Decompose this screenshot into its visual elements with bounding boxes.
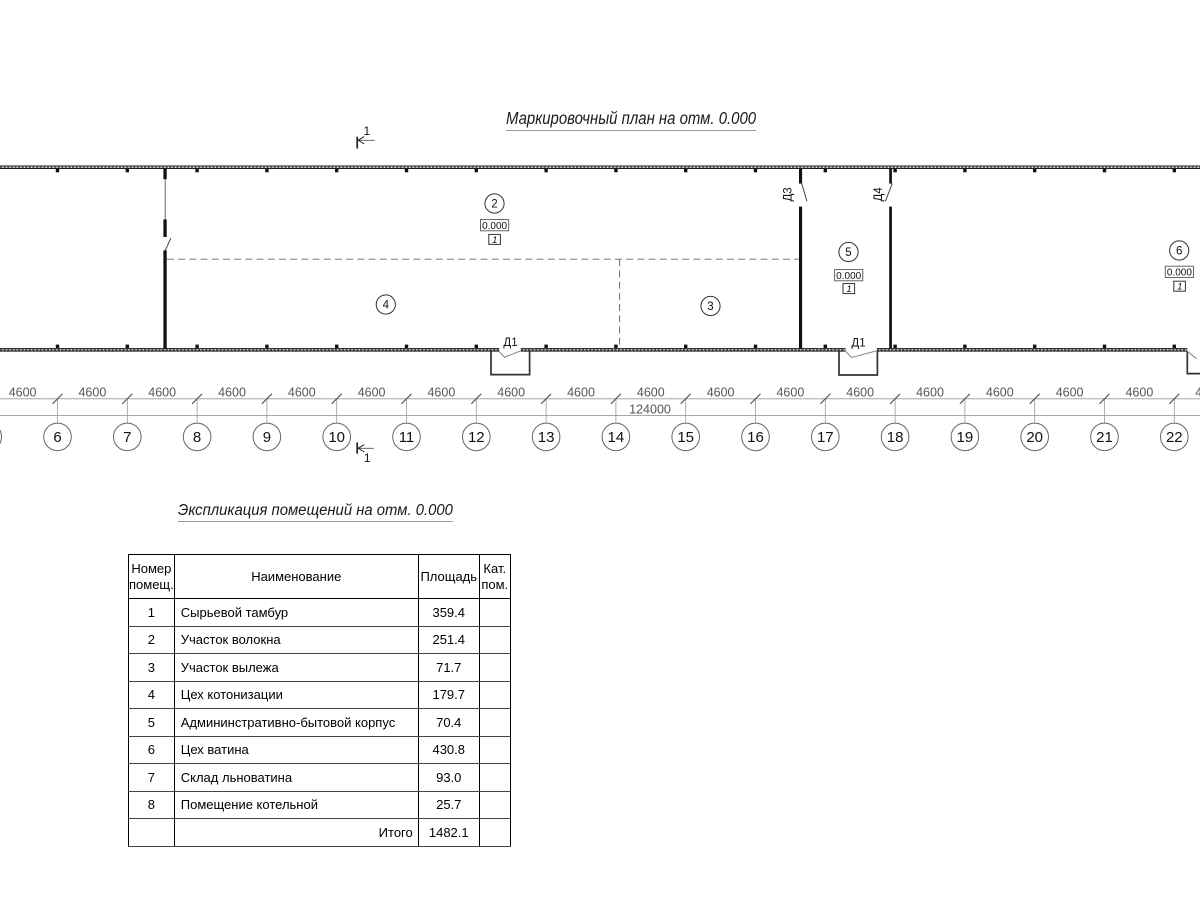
svg-text:0.000: 0.000 [836, 271, 861, 282]
svg-text:1: 1 [363, 124, 370, 138]
svg-text:19: 19 [957, 429, 974, 446]
svg-text:6: 6 [1176, 246, 1182, 258]
svg-text:4600: 4600 [358, 385, 386, 399]
svg-text:4600: 4600 [288, 385, 316, 399]
svg-text:2: 2 [491, 199, 497, 211]
svg-text:1: 1 [364, 451, 371, 465]
svg-text:4600: 4600 [986, 385, 1014, 399]
svg-text:4600: 4600 [1195, 385, 1200, 399]
svg-text:4600: 4600 [776, 385, 804, 399]
svg-text:22: 22 [1166, 429, 1183, 446]
svg-text:4600: 4600 [9, 385, 37, 399]
svg-text:1: 1 [492, 235, 497, 246]
svg-text:4600: 4600 [916, 385, 944, 399]
svg-text:18: 18 [887, 429, 904, 446]
svg-text:Д1: Д1 [851, 338, 865, 350]
svg-text:0.000: 0.000 [482, 221, 507, 232]
svg-text:1: 1 [1177, 282, 1182, 293]
svg-text:4600: 4600 [637, 385, 665, 399]
svg-text:21: 21 [1096, 429, 1113, 446]
svg-text:Д1: Д1 [503, 337, 517, 349]
svg-text:9: 9 [263, 429, 271, 446]
svg-text:124000: 124000 [629, 403, 671, 417]
svg-text:0.000: 0.000 [1167, 267, 1192, 278]
svg-text:3: 3 [707, 301, 713, 313]
svg-text:7: 7 [123, 429, 131, 446]
svg-text:4600: 4600 [218, 385, 246, 399]
svg-text:4600: 4600 [1125, 385, 1153, 399]
svg-text:4600: 4600 [707, 385, 735, 399]
svg-text:4600: 4600 [846, 385, 874, 399]
svg-text:14: 14 [608, 429, 625, 446]
svg-text:Д3: Д3 [783, 187, 795, 201]
svg-text:4600: 4600 [78, 385, 106, 399]
svg-text:5: 5 [845, 247, 851, 259]
svg-text:13: 13 [538, 429, 555, 446]
svg-text:11: 11 [399, 429, 415, 446]
svg-text:4600: 4600 [567, 385, 595, 399]
svg-text:15: 15 [677, 429, 694, 446]
svg-text:12: 12 [468, 429, 485, 446]
svg-text:6: 6 [53, 429, 61, 446]
svg-text:16: 16 [747, 429, 764, 446]
svg-text:4600: 4600 [427, 385, 455, 399]
svg-text:1: 1 [846, 284, 851, 295]
svg-text:4600: 4600 [1056, 385, 1084, 399]
svg-text:4600: 4600 [497, 385, 525, 399]
svg-text:8: 8 [193, 429, 201, 446]
svg-text:17: 17 [817, 429, 834, 446]
svg-text:Д4: Д4 [873, 187, 885, 202]
svg-text:4: 4 [383, 300, 390, 312]
svg-text:20: 20 [1026, 429, 1043, 446]
svg-text:10: 10 [328, 429, 345, 446]
svg-text:4600: 4600 [148, 385, 176, 399]
